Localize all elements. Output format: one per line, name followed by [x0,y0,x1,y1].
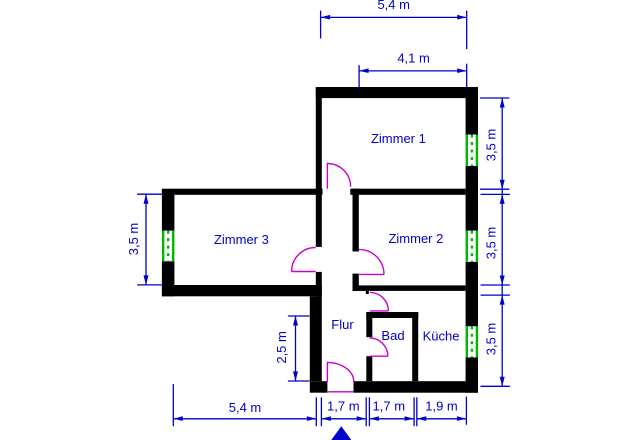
svg-text:1,9 m: 1,9 m [425,398,458,413]
svg-text:5,4 m: 5,4 m [377,0,410,12]
svg-text:5,4 m: 5,4 m [229,400,262,415]
svg-text:3,5 m: 3,5 m [483,129,498,162]
svg-text:Küche: Küche [423,328,460,343]
svg-text:1,7 m: 1,7 m [327,398,360,413]
svg-text:4,1 m: 4,1 m [397,50,430,65]
svg-text:2,5 m: 2,5 m [274,331,289,364]
svg-text:1,7 m: 1,7 m [373,398,406,413]
svg-text:3,5 m: 3,5 m [126,223,141,256]
svg-text:Zimmer 2: Zimmer 2 [388,231,443,246]
svg-text:Zimmer 3: Zimmer 3 [214,232,269,247]
svg-text:3,5 m: 3,5 m [483,323,498,356]
svg-text:Bad: Bad [381,328,404,343]
svg-text:3,5 m: 3,5 m [483,227,498,260]
svg-text:Zimmer 1: Zimmer 1 [371,131,426,146]
svg-text:Flur: Flur [331,317,354,332]
